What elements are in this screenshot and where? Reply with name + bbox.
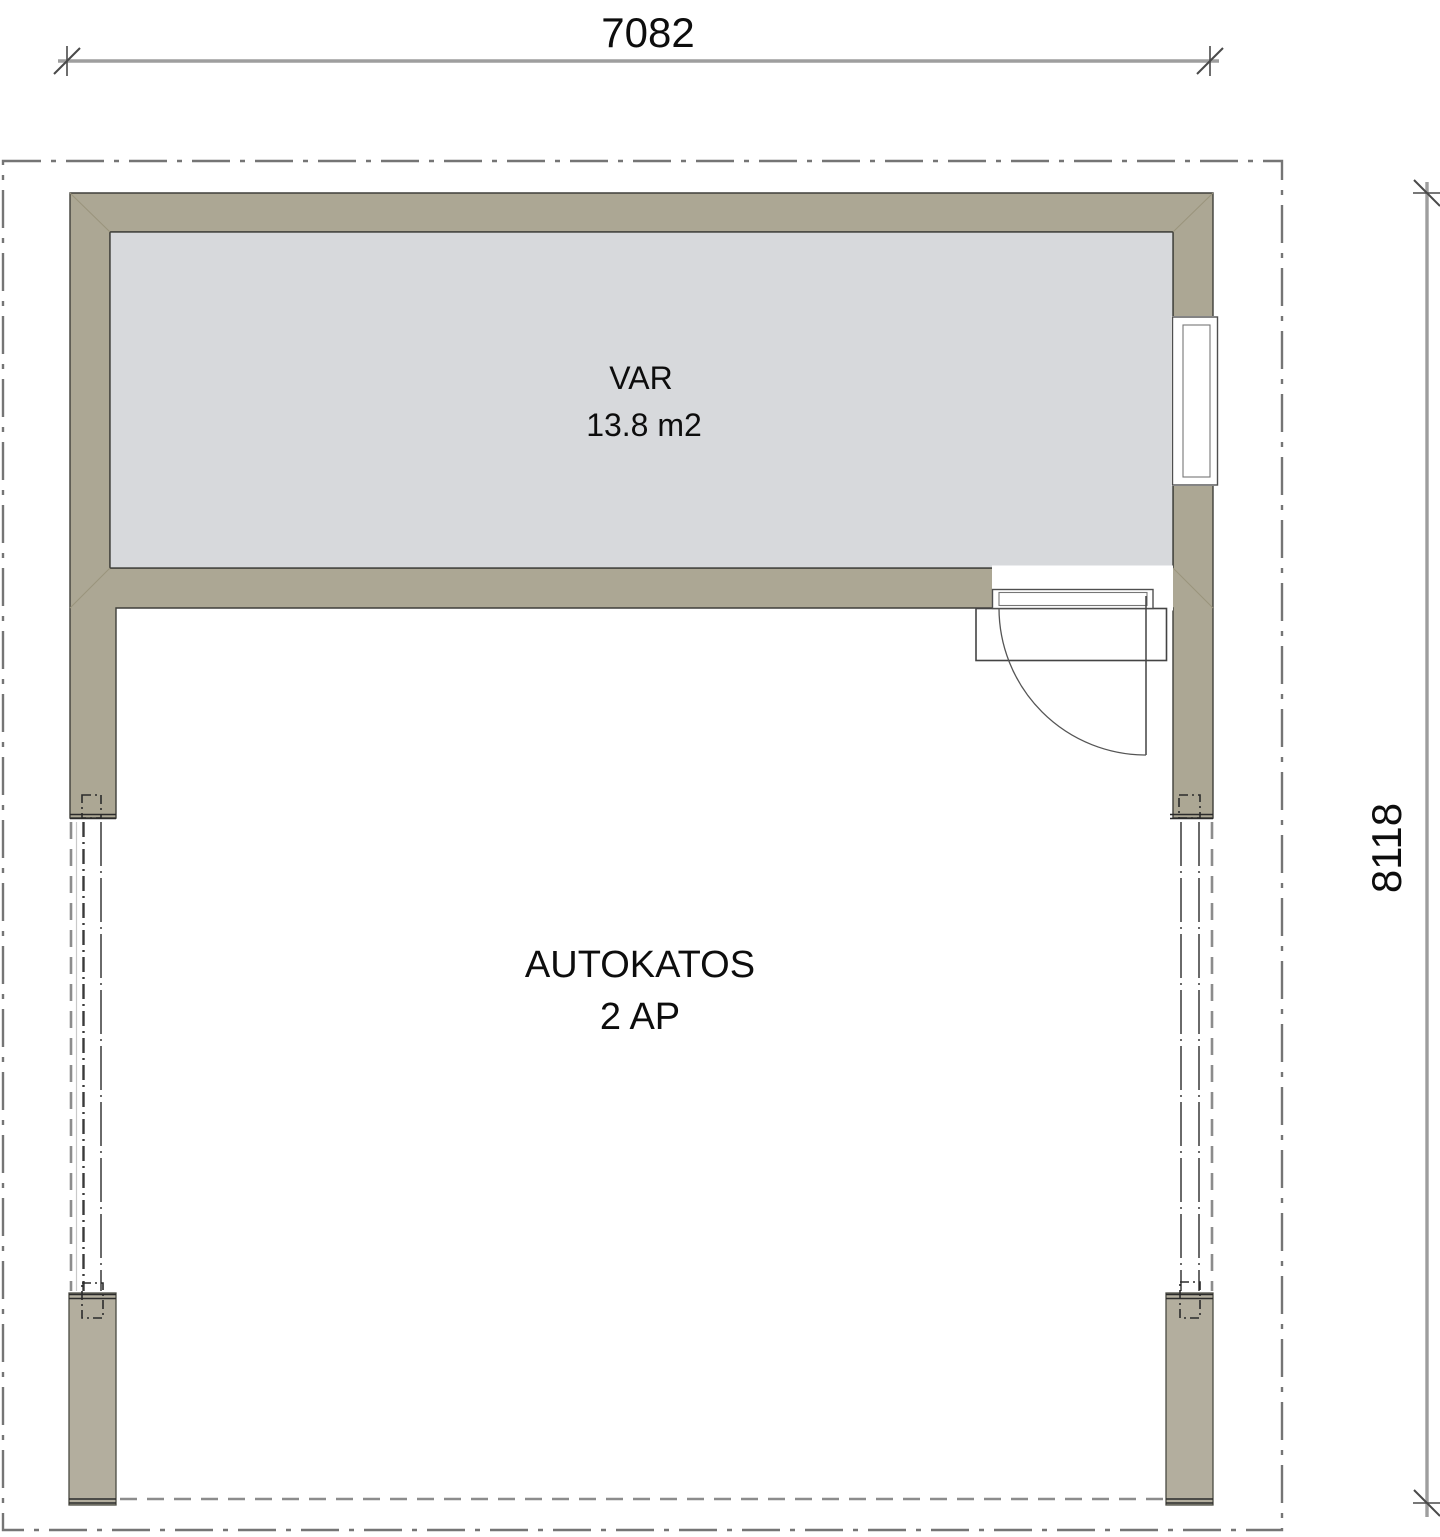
storage-room-label: VAR <box>609 360 672 396</box>
storage-room-area: 13.8 m2 <box>586 407 702 443</box>
storage-room-floor <box>110 232 1173 568</box>
carport-label: AUTOKATOS <box>525 944 755 986</box>
door-step <box>976 609 1167 661</box>
floor-plan-canvas: 7082 8118 VAR 13.8 m2 AUTOKATOS 2 AP <box>0 0 1440 1537</box>
window-frame <box>1173 317 1218 485</box>
right-column <box>1166 1293 1213 1505</box>
width-dimension-text: 7082 <box>601 9 694 56</box>
left-column <box>69 1293 116 1505</box>
depth-dimension-text: 8118 <box>1363 803 1410 893</box>
carport-capacity: 2 AP <box>600 996 680 1038</box>
